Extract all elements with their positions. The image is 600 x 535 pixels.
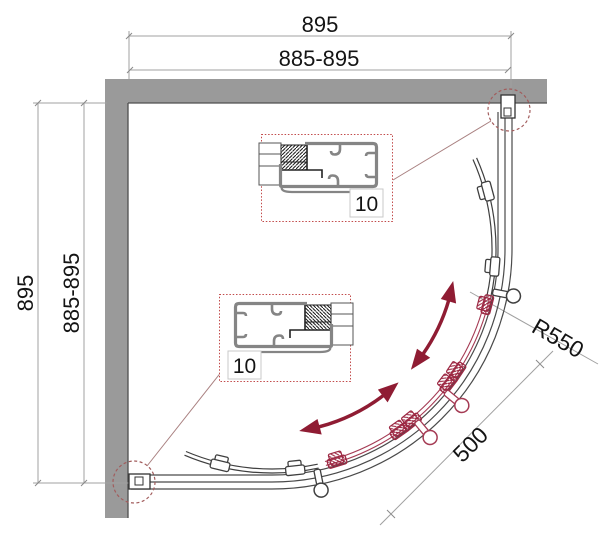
roller-clamp: [485, 256, 500, 276]
drawing-canvas: 895 885-895 895 885-895 R550 500: [0, 0, 600, 535]
dim-radius: R550: [528, 313, 589, 363]
enclosure-plan-svg: 895 885-895 895 885-895 R550 500: [0, 0, 600, 535]
arrow-down-icon: [411, 349, 430, 370]
dim-left-inner: 885-895: [59, 253, 84, 334]
detail-label-top: 10: [355, 193, 378, 216]
dim-left-outer: 895: [13, 275, 38, 312]
top-wall: [105, 79, 547, 103]
red-roller: [325, 450, 347, 469]
wall-profile-top-inner: [504, 108, 511, 116]
detail-label-bottom: 10: [233, 355, 256, 378]
detail-box-bottom: 10: [220, 295, 354, 382]
dim-top-outer: 895: [302, 12, 339, 37]
arrow-up-icon: [441, 281, 456, 304]
arrow-upper-shaft: [423, 300, 449, 355]
arrow-lower-shaft: [320, 394, 386, 427]
roller-clamp: [210, 454, 232, 472]
dim-door: 500: [448, 422, 494, 468]
door-glass-upper: [473, 158, 496, 298]
roller-clamp: [476, 181, 494, 203]
callout-leader-top: [393, 121, 491, 180]
wall-profile-bottom-inner: [135, 477, 143, 485]
left-wall: [105, 79, 128, 518]
fixed-panel-top: [498, 112, 512, 249]
fixed-panel-left: [131, 475, 272, 489]
callout-leader-bottom: [147, 371, 222, 466]
roller-clamp: [285, 460, 305, 476]
arrow-left-icon: [299, 419, 322, 435]
dim-top-inner: 885-895: [279, 46, 360, 71]
detail-box-top: 10: [259, 135, 393, 222]
